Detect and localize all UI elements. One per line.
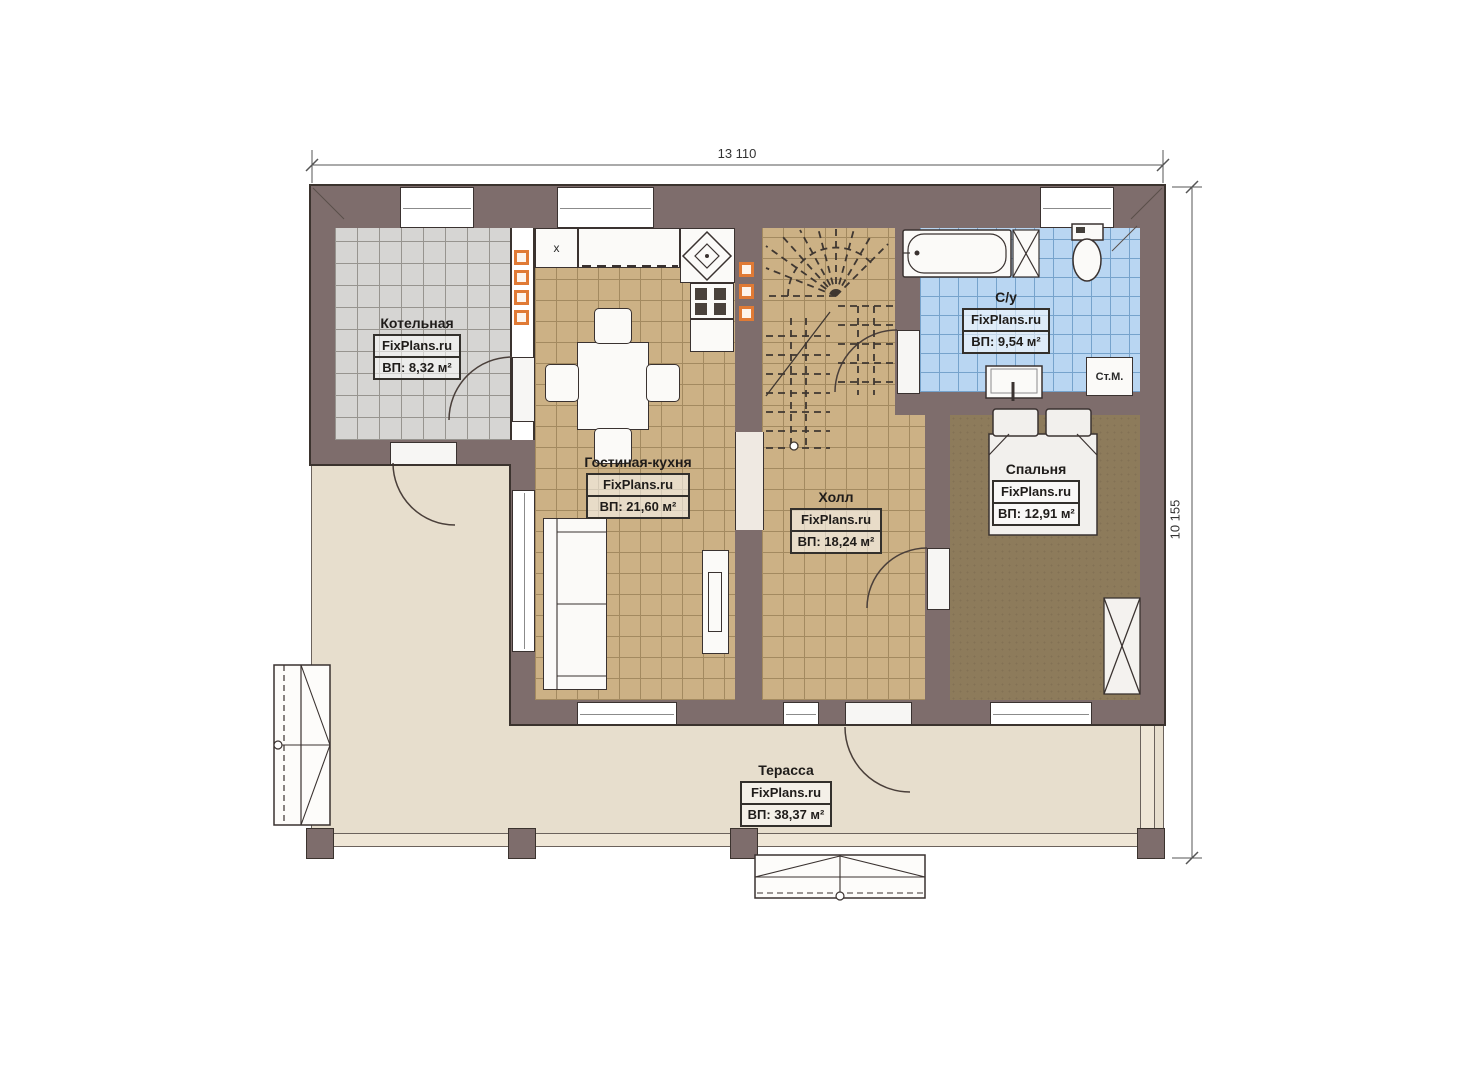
bathtub (903, 230, 1011, 277)
room-info-box: FixPlans.ru ВП: 21,60 м² (586, 473, 690, 519)
room-info-box: FixPlans.ru ВП: 38,37 м² (740, 781, 832, 827)
brand-watermark: FixPlans.ru (792, 510, 880, 532)
exterior-stair-bottom (755, 855, 925, 900)
room-name: Спальня (1006, 460, 1066, 478)
room-area: ВП: 38,37 м² (742, 805, 830, 825)
room-name: Терасса (758, 761, 814, 779)
bath-shelf (1013, 230, 1039, 277)
dimension-height: 10 155 (1168, 475, 1183, 565)
wardrobe (1104, 598, 1140, 694)
brand-watermark: FixPlans.ru (375, 336, 459, 358)
room-area: ВП: 12,91 м² (994, 504, 1078, 524)
floor-plan: x Ст.М. (0, 0, 1473, 1080)
room-info-box: FixPlans.ru ВП: 12,91 м² (992, 480, 1080, 526)
room-name: Холл (818, 488, 853, 506)
room-name: Гостиная-кухня (584, 453, 691, 471)
room-label-hall: Холл FixPlans.ru ВП: 18,24 м² (790, 488, 882, 554)
washing-machine-label: Ст.М. (1086, 357, 1133, 396)
room-area: ВП: 9,54 м² (964, 332, 1048, 352)
brand-watermark: FixPlans.ru (994, 482, 1078, 504)
stair-start-marker (790, 442, 798, 450)
room-name: Котельная (380, 314, 453, 332)
plan-linework (0, 0, 1473, 1080)
toilet (1072, 224, 1103, 281)
room-label-boiler: Котельная FixPlans.ru ВП: 8,32 м² (373, 314, 461, 380)
fridge-mark: x (535, 228, 578, 268)
room-label-terrace: Терасса FixPlans.ru ВП: 38,37 м² (740, 761, 832, 827)
staircase (766, 227, 896, 448)
room-area: ВП: 18,24 м² (792, 532, 880, 552)
exterior-stair-left (274, 665, 330, 825)
room-label-living: Гостиная-кухня FixPlans.ru ВП: 21,60 м² (586, 453, 690, 519)
brand-watermark: FixPlans.ru (742, 783, 830, 805)
brand-watermark: FixPlans.ru (964, 310, 1048, 332)
room-area: ВП: 8,32 м² (375, 358, 459, 378)
brand-watermark: FixPlans.ru (588, 475, 688, 497)
stair-break-line (766, 312, 830, 396)
dimension-width: 13 110 (687, 146, 787, 161)
bath-sink (986, 366, 1042, 401)
sofa-lines (557, 519, 606, 689)
room-name: С/у (995, 288, 1017, 306)
room-label-bathroom: С/у FixPlans.ru ВП: 9,54 м² (962, 288, 1050, 354)
door-swing-arcs (393, 330, 927, 792)
kitchen-sink (683, 232, 731, 280)
room-area: ВП: 21,60 м² (588, 497, 688, 517)
room-label-bedroom: Спальня FixPlans.ru ВП: 12,91 м² (992, 460, 1080, 526)
room-info-box: FixPlans.ru ВП: 18,24 м² (790, 508, 882, 554)
room-info-box: FixPlans.ru ВП: 8,32 м² (373, 334, 461, 380)
room-info-box: FixPlans.ru ВП: 9,54 м² (962, 308, 1050, 354)
